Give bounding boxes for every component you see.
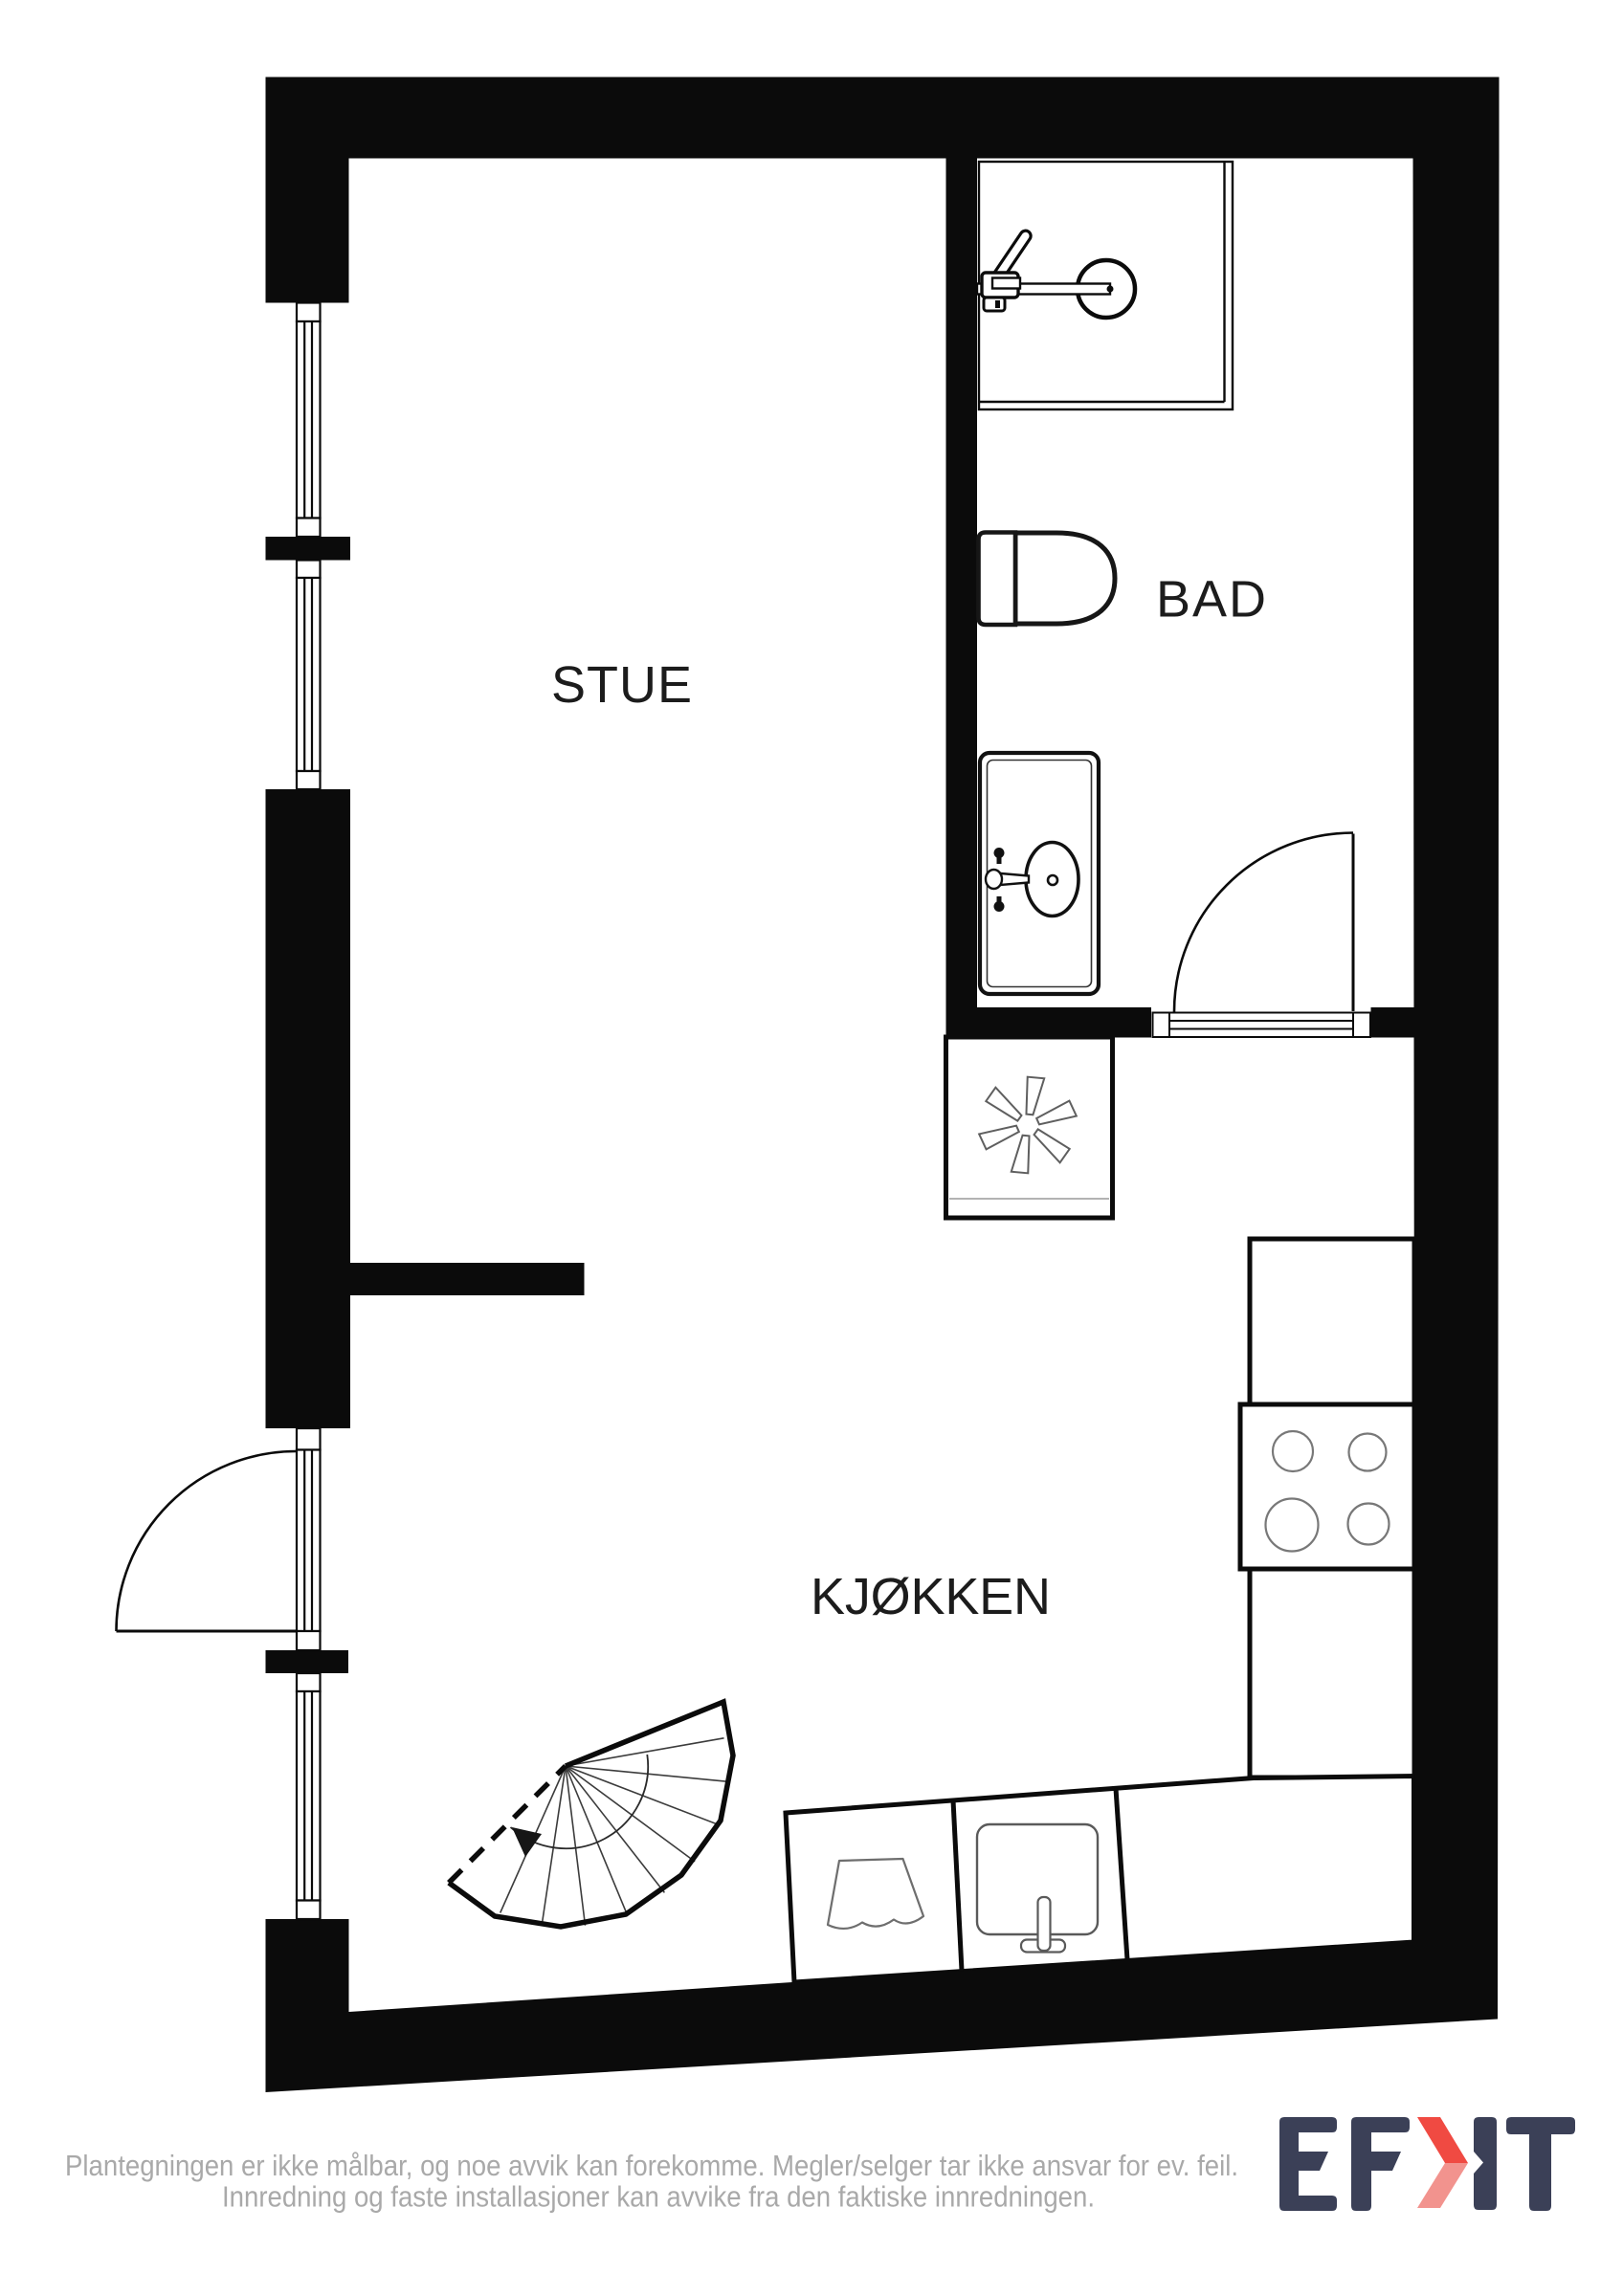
svg-text:Plantegningen er ikke målbar,: Plantegningen er ikke målbar, og noe avv…: [65, 2149, 1238, 2182]
svg-text:BAD: BAD: [1156, 571, 1269, 629]
svg-text:KJØKKEN: KJØKKEN: [811, 1568, 1052, 1625]
svg-text:Innredning og faste installasj: Innredning og faste installasjoner kan a…: [222, 2180, 1095, 2214]
svg-text:STUE: STUE: [551, 656, 695, 714]
